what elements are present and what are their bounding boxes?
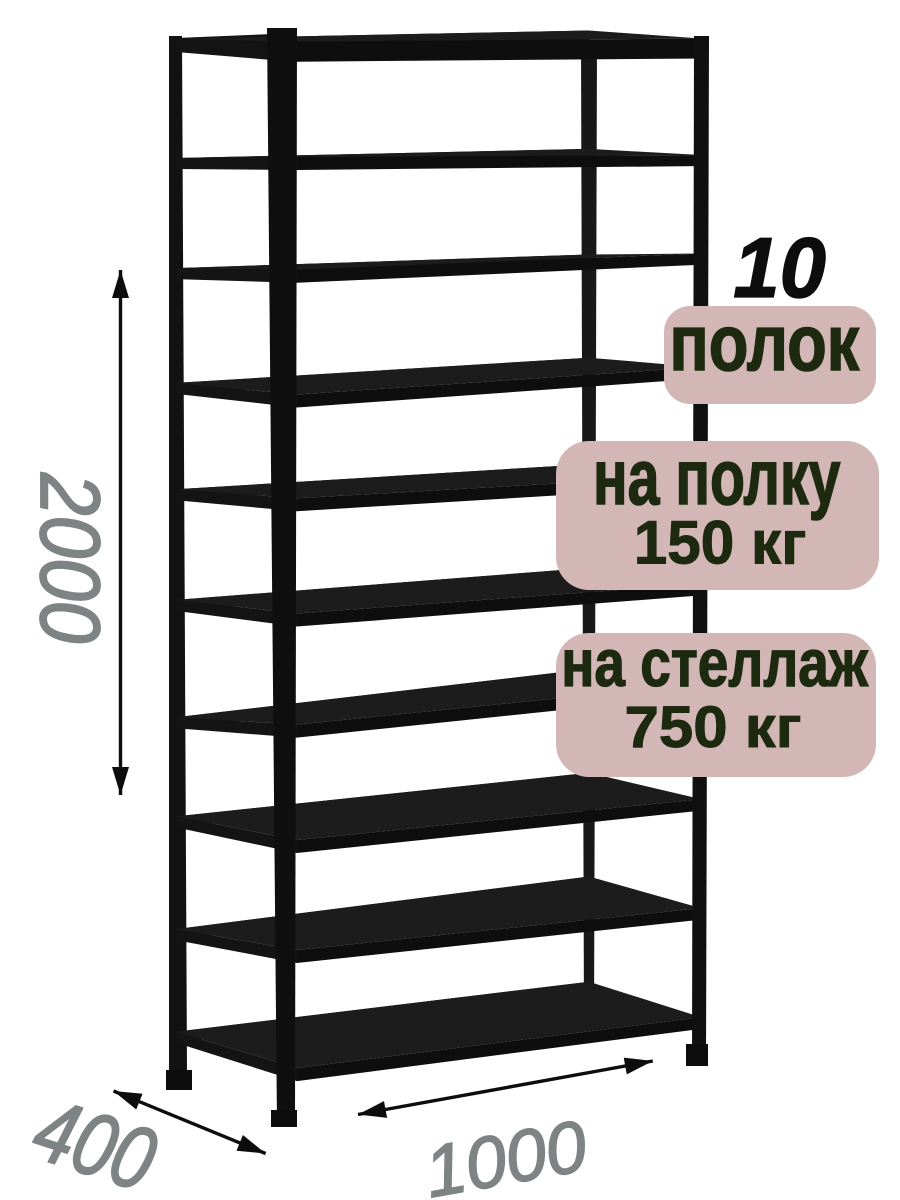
- svg-text:2000: 2000: [22, 472, 116, 643]
- svg-text:150 кг: 150 кг: [634, 508, 807, 577]
- svg-text:1000: 1000: [419, 1106, 593, 1200]
- svg-text:на стеллаж: на стеллаж: [561, 626, 868, 700]
- svg-text:полок: полок: [670, 300, 861, 387]
- svg-text:400: 400: [22, 1080, 167, 1200]
- svg-text:750 кг: 750 кг: [625, 693, 802, 759]
